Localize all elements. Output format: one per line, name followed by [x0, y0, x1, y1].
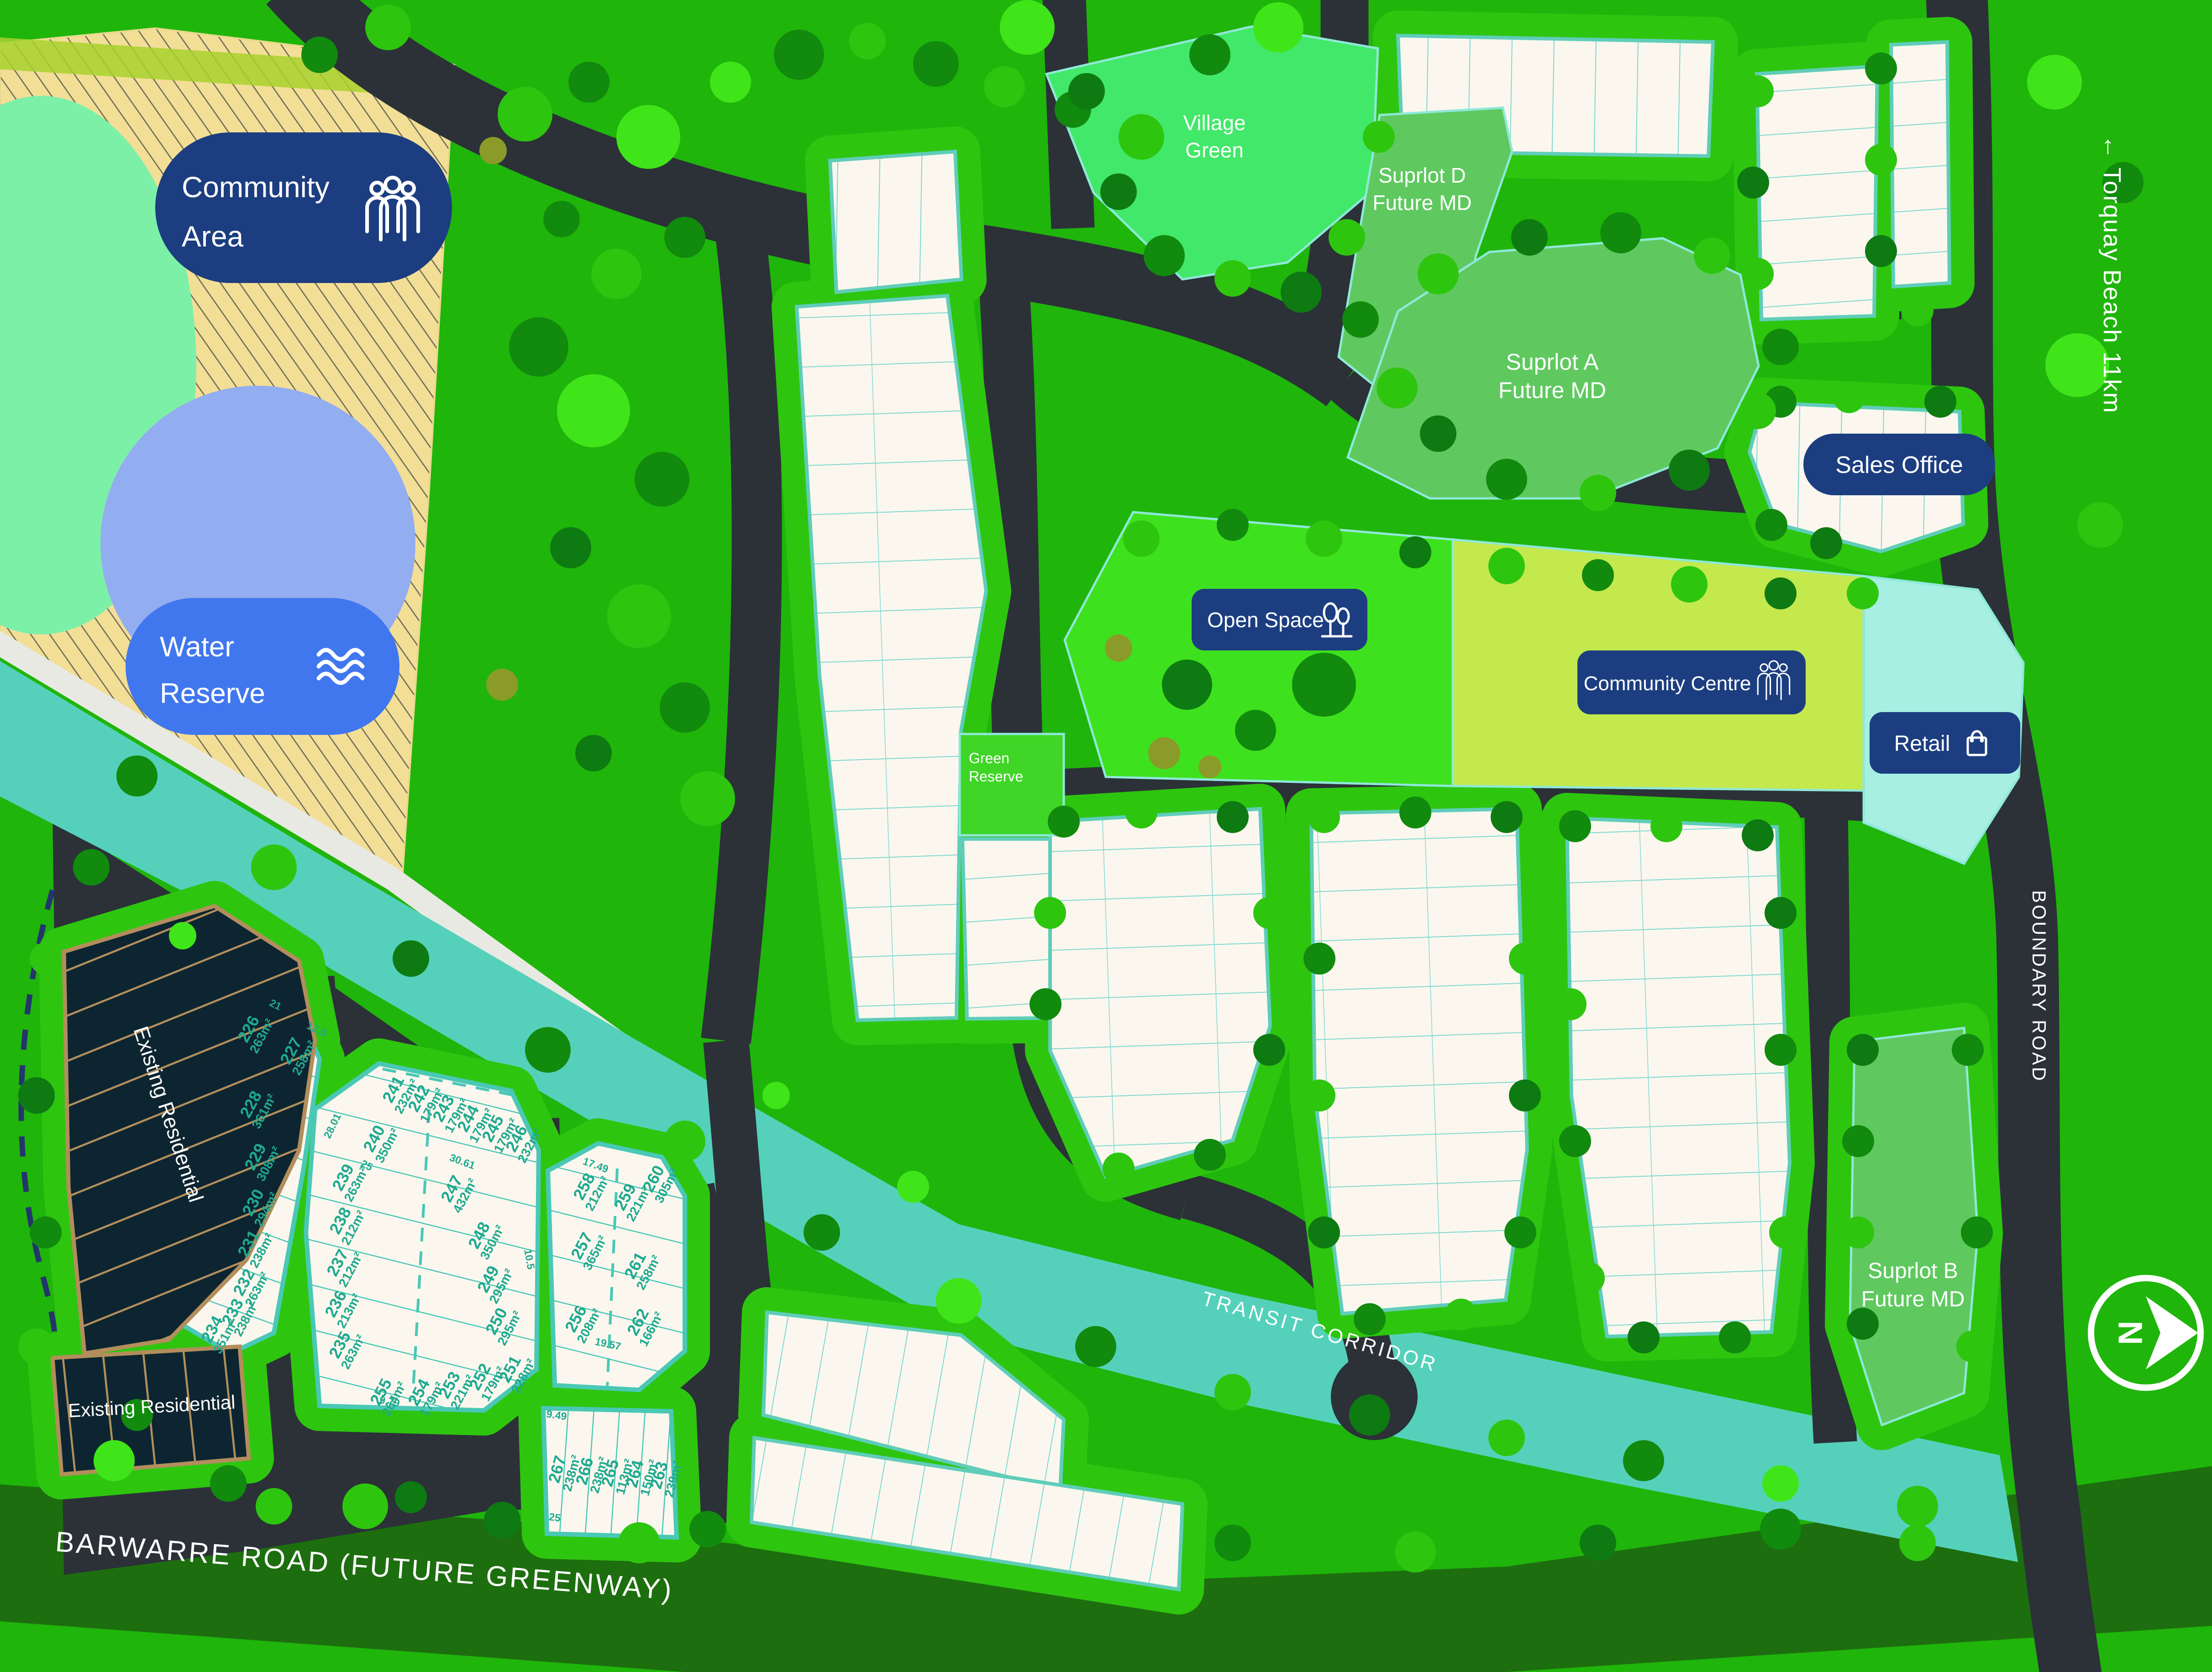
lot-dimension: 25	[548, 1510, 562, 1524]
sales-office-label: Sales Office	[1835, 452, 1963, 478]
retail-label: Retail	[1894, 732, 1950, 756]
retail-badge: Retail	[1870, 712, 2020, 774]
village-green-label-1: Village	[1183, 111, 1245, 135]
green-reserve-label-2: Reserve	[969, 768, 1023, 785]
community-area-badge: Community Area	[155, 132, 452, 283]
suprlot-b-label-2: Future MD	[1861, 1287, 1965, 1311]
suprlot-d-label-1: Suprlot D	[1378, 163, 1466, 187]
masterplan-map: Community Area Water Reserve Village Gre…	[0, 0, 2212, 1672]
compass-n-label: N	[2111, 1321, 2149, 1345]
community-centre-badge: Community Centre	[1577, 650, 1806, 714]
water-reserve-label-1: Water	[160, 631, 234, 663]
water-reserve-badge: Water Reserve	[100, 386, 415, 735]
torquay-beach-sign: ← Torquay Beach 11km	[2098, 135, 2126, 414]
community-centre-label: Community Centre	[1584, 672, 1751, 695]
suprlot-d-label-2: Future MD	[1372, 191, 1471, 215]
community-area-label-1: Community	[182, 171, 330, 204]
community-area-label-2: Area	[182, 220, 244, 253]
sales-office-badge: Sales Office	[1803, 434, 1995, 495]
map-canvas: Community Area Water Reserve Village Gre…	[0, 0, 2212, 1672]
village-green-label-2: Green	[1185, 138, 1244, 162]
open-space-badge: Open Space	[1192, 589, 1367, 650]
open-space-label: Open Space	[1207, 608, 1324, 632]
suprlot-a-label-2: Future MD	[1498, 377, 1606, 403]
green-reserve-label-1: Green	[969, 750, 1009, 766]
suprlot-a-label-1: Suprlot A	[1506, 349, 1599, 375]
boundary-road-label: BOUNDARY ROAD	[2028, 890, 2050, 1083]
water-reserve-label-2: Reserve	[160, 678, 265, 709]
suprlot-b-label-1: Suprlot B	[1868, 1259, 1958, 1283]
